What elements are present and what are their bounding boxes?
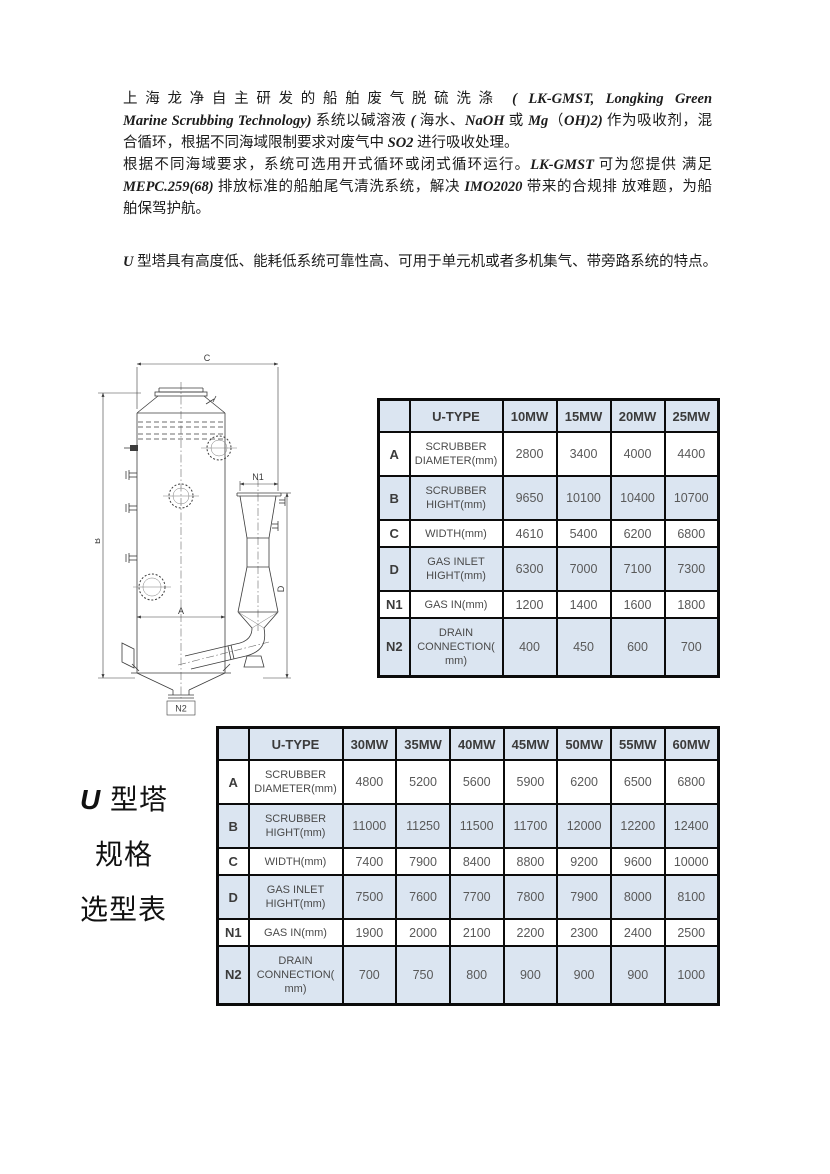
- row-key: N1: [218, 919, 249, 946]
- value-cell: 7000: [557, 547, 611, 591]
- value-cell: 2400: [611, 919, 665, 946]
- column-header: 10MW: [503, 400, 557, 433]
- paragraph-line: Marine Scrubbing Technology) 系统以碱溶液 ( 海水…: [123, 110, 712, 132]
- value-cell: 7800: [504, 875, 558, 919]
- column-header: 20MW: [611, 400, 665, 433]
- row-parameter: SCRUBBER HIGHT(mm): [249, 804, 343, 848]
- paragraph-line: 上海龙净自主研发的船舶废气脱硫洗涤 ( LK-GMST, Longking Gr…: [123, 88, 712, 110]
- dimension-d: D: [263, 493, 291, 678]
- value-cell: 1800: [665, 591, 719, 618]
- table-row: N1GAS IN(mm)1200140016001800: [379, 591, 719, 618]
- value-cell: 6800: [665, 760, 719, 804]
- value-cell: 9650: [503, 476, 557, 520]
- dimension-c-label: C: [204, 353, 211, 363]
- manhole-flanges: [133, 436, 237, 600]
- row-key: A: [379, 432, 410, 476]
- header-row: U-TYPE10MW15MW20MW25MW: [379, 400, 719, 433]
- table-row: N1GAS IN(mm)1900200021002200230024002500: [218, 919, 719, 946]
- table-row: CWIDTH(mm)4610540062006800: [379, 520, 719, 547]
- value-cell: 10100: [557, 476, 611, 520]
- value-cell: 12000: [557, 804, 611, 848]
- table-row: CWIDTH(mm)74007900840088009200960010000: [218, 848, 719, 875]
- row-key: B: [379, 476, 410, 520]
- row-key: N1: [379, 591, 410, 618]
- paragraph-line: 舶保驾护航。: [123, 198, 712, 220]
- value-cell: 8000: [611, 875, 665, 919]
- value-cell: 9600: [611, 848, 665, 875]
- value-cell: 3400: [557, 432, 611, 476]
- paragraph-line: 根据不同海域要求，系统可选用开式循环或闭式循环运行。LK-GMST 可为您提供 …: [123, 154, 712, 176]
- table-row: DGAS INLET HIGHT(mm)75007600770078007900…: [218, 875, 719, 919]
- value-cell: 750: [396, 946, 450, 1004]
- value-cell: 5200: [396, 760, 450, 804]
- value-cell: 6300: [503, 547, 557, 591]
- feature-line: U 型塔具有高度低、能耗低系统可靠性高、可用于单元机或者多机集气、带旁路系统的特…: [123, 251, 723, 273]
- value-cell: 600: [611, 618, 665, 676]
- row-parameter: GAS INLET HIGHT(mm): [249, 875, 343, 919]
- value-cell: 900: [611, 946, 665, 1004]
- value-cell: 11700: [504, 804, 558, 848]
- row-parameter: DRAIN CONNECTION( mm): [410, 618, 503, 676]
- value-cell: 1600: [611, 591, 665, 618]
- value-cell: 7400: [343, 848, 397, 875]
- value-cell: 700: [665, 618, 719, 676]
- row-key: A: [218, 760, 249, 804]
- column-header: U-TYPE: [410, 400, 503, 433]
- row-key: C: [379, 520, 410, 547]
- value-cell: 400: [503, 618, 557, 676]
- value-cell: 6200: [611, 520, 665, 547]
- value-cell: 900: [557, 946, 611, 1004]
- row-parameter: SCRUBBER DIAMETER(mm): [249, 760, 343, 804]
- corner-cell: [379, 400, 410, 433]
- side-caption: U 型塔 规格 选型表: [80, 772, 198, 937]
- value-cell: 5600: [450, 760, 504, 804]
- value-cell: 4800: [343, 760, 397, 804]
- page: 上海龙净自主研发的船舶废气脱硫洗涤 ( LK-GMST, Longking Gr…: [0, 0, 830, 1174]
- value-cell: 2000: [396, 919, 450, 946]
- gas-inlet-n1-label: N1: [252, 472, 264, 482]
- row-parameter: GAS IN(mm): [249, 919, 343, 946]
- side-caption-line: U 型塔: [80, 772, 198, 827]
- value-cell: 1000: [665, 946, 719, 1004]
- value-cell: 12400: [665, 804, 719, 848]
- row-key: D: [218, 875, 249, 919]
- value-cell: 900: [504, 946, 558, 1004]
- table-row: BSCRUBBER HIGHT(mm)110001125011500117001…: [218, 804, 719, 848]
- column-header: 55MW: [611, 728, 665, 761]
- value-cell: 6500: [611, 760, 665, 804]
- row-parameter: GAS INLET HIGHT(mm): [410, 547, 503, 591]
- column-header: 15MW: [557, 400, 611, 433]
- value-cell: 7100: [611, 547, 665, 591]
- row-parameter: GAS IN(mm): [410, 591, 503, 618]
- value-cell: 11500: [450, 804, 504, 848]
- row-parameter: WIDTH(mm): [249, 848, 343, 875]
- column-header: 45MW: [504, 728, 558, 761]
- value-cell: 5400: [557, 520, 611, 547]
- row-key: C: [218, 848, 249, 875]
- value-cell: 8400: [450, 848, 504, 875]
- value-cell: 6800: [665, 520, 719, 547]
- column-header: 35MW: [396, 728, 450, 761]
- row-parameter: SCRUBBER DIAMETER(mm): [410, 432, 503, 476]
- value-cell: 7600: [396, 875, 450, 919]
- utype-spec-table-30-60mw: U-TYPE30MW35MW40MW45MW50MW55MW60MWASCRUB…: [216, 726, 720, 1006]
- value-cell: 5900: [504, 760, 558, 804]
- value-cell: 9200: [557, 848, 611, 875]
- value-cell: 7500: [343, 875, 397, 919]
- value-cell: 7700: [450, 875, 504, 919]
- column-header: 60MW: [665, 728, 719, 761]
- value-cell: 450: [557, 618, 611, 676]
- value-cell: 6200: [557, 760, 611, 804]
- value-cell: 2100: [450, 919, 504, 946]
- value-cell: 7900: [396, 848, 450, 875]
- side-caption-line: 规格: [80, 827, 198, 882]
- value-cell: 4000: [611, 432, 665, 476]
- value-cell: 4400: [665, 432, 719, 476]
- table-row: DGAS INLET HIGHT(mm)6300700071007300: [379, 547, 719, 591]
- value-cell: 1200: [503, 591, 557, 618]
- value-cell: 1900: [343, 919, 397, 946]
- row-parameter: SCRUBBER HIGHT(mm): [410, 476, 503, 520]
- value-cell: 7900: [557, 875, 611, 919]
- row-parameter: DRAIN CONNECTION( mm): [249, 946, 343, 1004]
- table-row: N2DRAIN CONNECTION( mm)70075080090090090…: [218, 946, 719, 1004]
- dimension-a: A: [137, 606, 225, 617]
- side-nozzles: [122, 445, 138, 668]
- value-cell: 8800: [504, 848, 558, 875]
- column-header: 40MW: [450, 728, 504, 761]
- row-key: D: [379, 547, 410, 591]
- row-key: N2: [379, 618, 410, 676]
- table-row: ASCRUBBER DIAMETER(mm)480052005600590062…: [218, 760, 719, 804]
- value-cell: 2200: [504, 919, 558, 946]
- value-cell: 10000: [665, 848, 719, 875]
- dimension-a-label: A: [178, 606, 184, 616]
- gas-inlet-duct: [185, 493, 285, 669]
- table-row: N2DRAIN CONNECTION( mm)400450600700: [379, 618, 719, 676]
- value-cell: 700: [343, 946, 397, 1004]
- value-cell: 2300: [557, 919, 611, 946]
- value-cell: 1400: [557, 591, 611, 618]
- table-row: BSCRUBBER HIGHT(mm)9650101001040010700: [379, 476, 719, 520]
- column-header: 25MW: [665, 400, 719, 433]
- corner-cell: [218, 728, 249, 761]
- value-cell: 11000: [343, 804, 397, 848]
- drain-n2-label: N2: [175, 704, 187, 714]
- dimension-b: B: [95, 393, 141, 678]
- dimension-n1: N1: [240, 472, 278, 491]
- header-row: U-TYPE30MW35MW40MW45MW50MW55MW60MW: [218, 728, 719, 761]
- value-cell: 4610: [503, 520, 557, 547]
- side-caption-line: 选型表: [80, 882, 198, 937]
- scrubber-tower-diagram: C B: [95, 348, 300, 725]
- row-key: B: [218, 804, 249, 848]
- scrubber-tower-svg: C B: [95, 348, 300, 725]
- column-header: 30MW: [343, 728, 397, 761]
- table-row: ASCRUBBER DIAMETER(mm)2800340040004400: [379, 432, 719, 476]
- value-cell: 11250: [396, 804, 450, 848]
- value-cell: 10400: [611, 476, 665, 520]
- dimension-d-label: D: [276, 585, 286, 592]
- value-cell: 800: [450, 946, 504, 1004]
- column-header: 50MW: [557, 728, 611, 761]
- row-key: N2: [218, 946, 249, 1004]
- paragraph-line: MEPC.259(68) 排放标准的船舶尾气清洗系统，解决 IMO2020 带来…: [123, 176, 712, 198]
- column-header: U-TYPE: [249, 728, 343, 761]
- value-cell: 7300: [665, 547, 719, 591]
- value-cell: 8100: [665, 875, 719, 919]
- value-cell: 12200: [611, 804, 665, 848]
- row-parameter: WIDTH(mm): [410, 520, 503, 547]
- dimension-b-label: B: [95, 538, 102, 544]
- center-axes: [178, 382, 269, 699]
- utype-spec-table-10-25mw: U-TYPE10MW15MW20MW25MWASCRUBBER DIAMETER…: [377, 398, 720, 678]
- value-cell: 10700: [665, 476, 719, 520]
- intro-paragraphs: 上海龙净自主研发的船舶废气脱硫洗涤 ( LK-GMST, Longking Gr…: [123, 88, 712, 220]
- value-cell: 2800: [503, 432, 557, 476]
- value-cell: 2500: [665, 919, 719, 946]
- paragraph-line: 合循环，根据不同海域限制要求对废气中 SO2 进行吸收处理。: [123, 132, 712, 154]
